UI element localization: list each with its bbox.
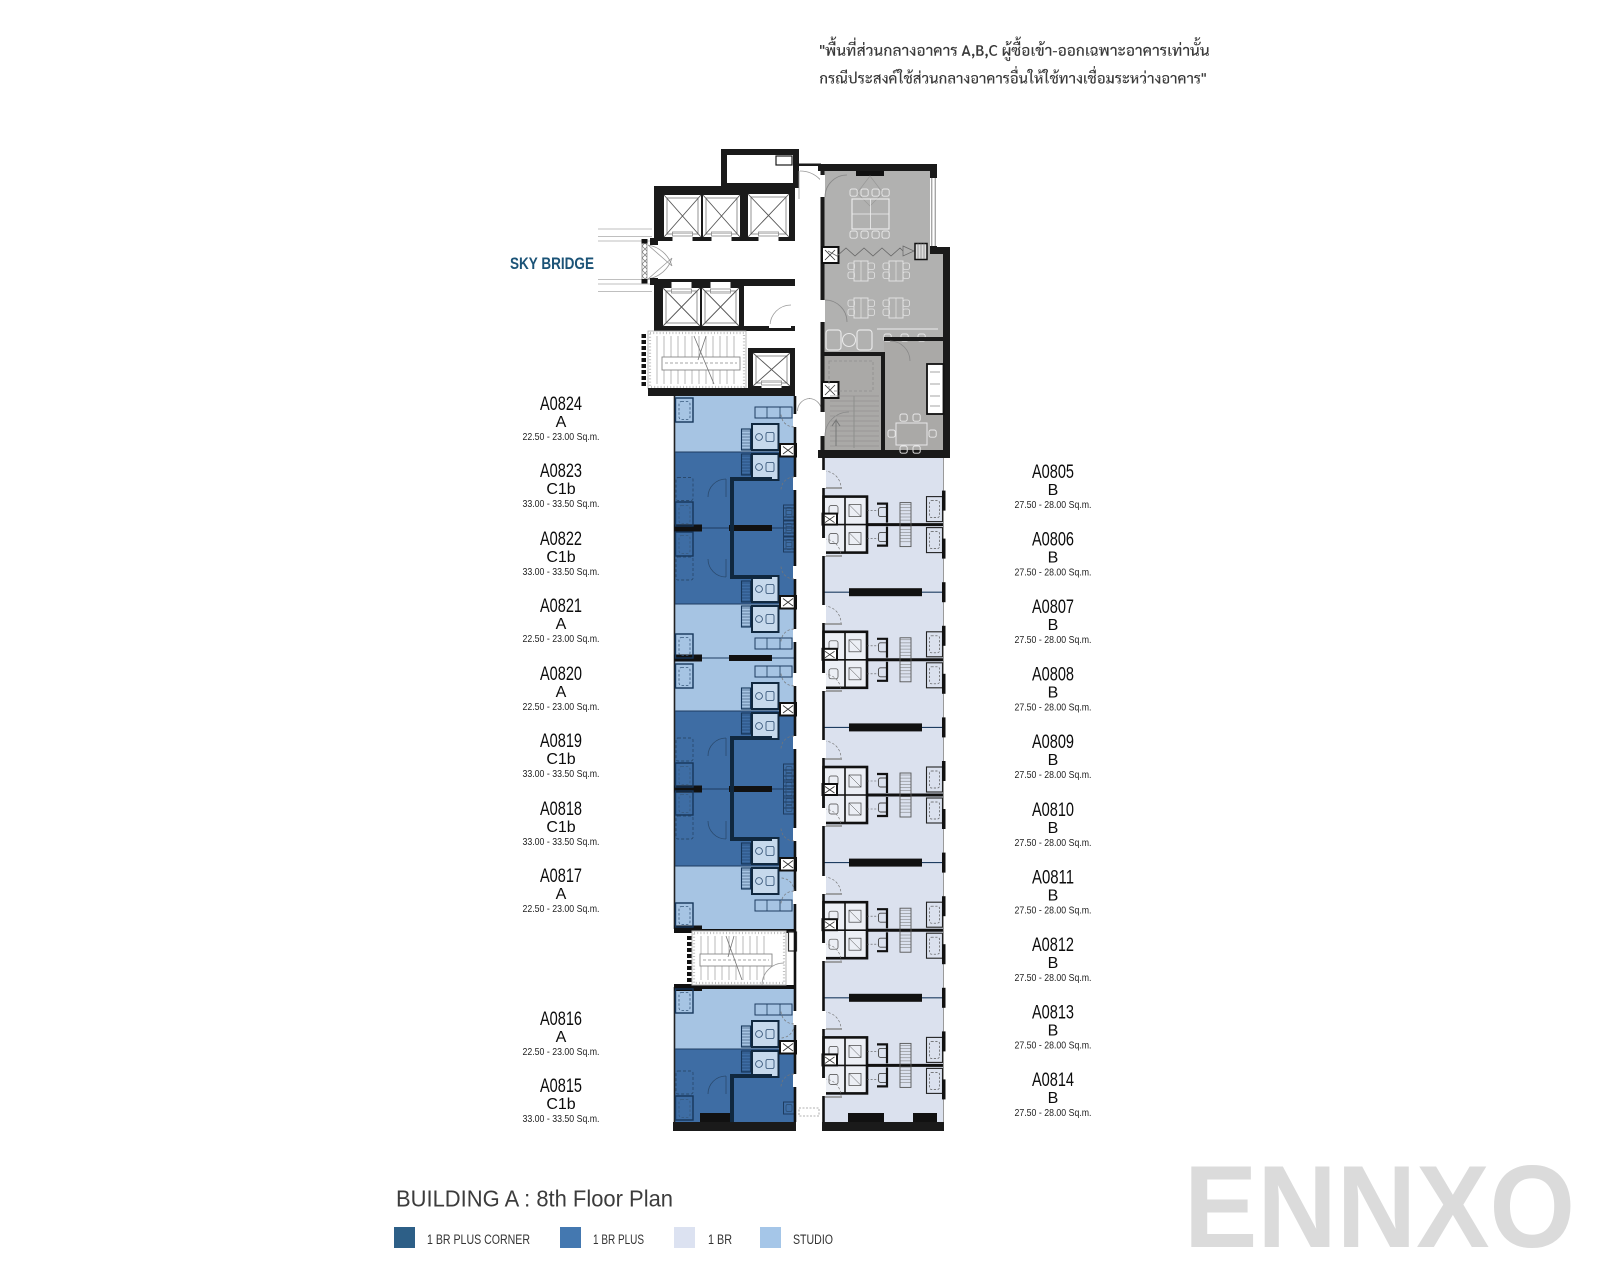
svg-text:C1b: C1b: [546, 549, 575, 566]
svg-text:B: B: [1048, 1090, 1059, 1107]
svg-text:B: B: [1048, 550, 1059, 567]
svg-text:A0824: A0824: [540, 394, 582, 415]
svg-text:27.50 - 28.00 Sq.m.: 27.50 - 28.00 Sq.m.: [1015, 702, 1092, 714]
svg-text:27.50 - 28.00 Sq.m.: 27.50 - 28.00 Sq.m.: [1015, 634, 1092, 646]
svg-text:SKY BRIDGE: SKY BRIDGE: [510, 255, 594, 273]
svg-text:22.50 - 23.00 Sq.m.: 22.50 - 23.00 Sq.m.: [523, 903, 600, 915]
svg-text:A: A: [556, 616, 567, 633]
svg-text:A: A: [556, 886, 567, 903]
svg-text:BUILDING A : 8th Floor Plan: BUILDING A : 8th Floor Plan: [396, 1186, 673, 1212]
svg-text:27.50 - 28.00 Sq.m.: 27.50 - 28.00 Sq.m.: [1015, 499, 1092, 511]
svg-text:27.50 - 28.00 Sq.m.: 27.50 - 28.00 Sq.m.: [1015, 567, 1092, 579]
svg-text:A0822: A0822: [540, 529, 582, 550]
svg-text:B: B: [1048, 955, 1059, 972]
svg-text:27.50 - 28.00 Sq.m.: 27.50 - 28.00 Sq.m.: [1015, 837, 1092, 849]
svg-text:A0810: A0810: [1032, 800, 1074, 821]
svg-text:22.50 - 23.00 Sq.m.: 22.50 - 23.00 Sq.m.: [523, 431, 600, 443]
svg-text:27.50 - 28.00 Sq.m.: 27.50 - 28.00 Sq.m.: [1015, 1039, 1092, 1051]
svg-text:B: B: [1048, 820, 1059, 837]
svg-text:22.50 - 23.00 Sq.m.: 22.50 - 23.00 Sq.m.: [523, 633, 600, 645]
svg-text:A0821: A0821: [540, 596, 582, 617]
svg-text:B: B: [1048, 752, 1059, 769]
svg-text:A0805: A0805: [1032, 462, 1074, 483]
svg-text:A: A: [556, 684, 567, 701]
svg-text:A: A: [556, 1029, 567, 1046]
svg-text:A0816: A0816: [540, 1009, 582, 1030]
svg-text:B: B: [1048, 1022, 1059, 1039]
svg-text:A: A: [556, 414, 567, 431]
svg-text:C1b: C1b: [546, 751, 575, 768]
svg-text:1 BR PLUS CORNER: 1 BR PLUS CORNER: [427, 1232, 530, 1247]
svg-text:A0815: A0815: [540, 1076, 582, 1097]
svg-text:A0818: A0818: [540, 799, 582, 820]
svg-text:27.50 - 28.00 Sq.m.: 27.50 - 28.00 Sq.m.: [1015, 904, 1092, 916]
svg-text:27.50 - 28.00 Sq.m.: 27.50 - 28.00 Sq.m.: [1015, 1107, 1092, 1119]
svg-text:1 BR PLUS: 1 BR PLUS: [593, 1232, 644, 1247]
svg-text:STUDIO: STUDIO: [793, 1232, 833, 1247]
svg-text:A0814: A0814: [1032, 1070, 1074, 1091]
svg-text:33.00 - 33.50 Sq.m.: 33.00 - 33.50 Sq.m.: [523, 498, 600, 510]
svg-text:A0813: A0813: [1032, 1002, 1074, 1023]
svg-text:27.50 - 28.00 Sq.m.: 27.50 - 28.00 Sq.m.: [1015, 769, 1092, 781]
svg-text:B: B: [1048, 685, 1059, 702]
svg-text:27.50 - 28.00 Sq.m.: 27.50 - 28.00 Sq.m.: [1015, 972, 1092, 984]
svg-text:A0808: A0808: [1032, 665, 1074, 686]
svg-text:A0817: A0817: [540, 866, 582, 887]
svg-text:B: B: [1048, 617, 1059, 634]
svg-text:ENNXO: ENNXO: [1184, 1141, 1575, 1272]
svg-text:22.50 - 23.00 Sq.m.: 22.50 - 23.00 Sq.m.: [523, 1046, 600, 1058]
svg-text:C1b: C1b: [546, 481, 575, 498]
svg-text:A0819: A0819: [540, 731, 582, 752]
svg-text:A0807: A0807: [1032, 597, 1074, 618]
svg-text:C1b: C1b: [546, 819, 575, 836]
svg-text:A0812: A0812: [1032, 935, 1074, 956]
svg-text:A0809: A0809: [1032, 732, 1074, 753]
svg-text:A0823: A0823: [540, 461, 582, 482]
svg-text:1 BR: 1 BR: [708, 1232, 732, 1247]
svg-text:B: B: [1048, 482, 1059, 499]
svg-text:33.00 - 33.50 Sq.m.: 33.00 - 33.50 Sq.m.: [523, 1113, 600, 1125]
svg-text:33.00 - 33.50 Sq.m.: 33.00 - 33.50 Sq.m.: [523, 836, 600, 848]
svg-text:A0811: A0811: [1032, 867, 1074, 888]
svg-text:C1b: C1b: [546, 1096, 575, 1113]
svg-text:A0820: A0820: [540, 664, 582, 685]
svg-text:B: B: [1048, 887, 1059, 904]
svg-text:33.00 - 33.50 Sq.m.: 33.00 - 33.50 Sq.m.: [523, 566, 600, 578]
svg-text:A0806: A0806: [1032, 530, 1074, 551]
svg-text:33.00 - 33.50 Sq.m.: 33.00 - 33.50 Sq.m.: [523, 768, 600, 780]
svg-text:22.50 - 23.00 Sq.m.: 22.50 - 23.00 Sq.m.: [523, 701, 600, 713]
